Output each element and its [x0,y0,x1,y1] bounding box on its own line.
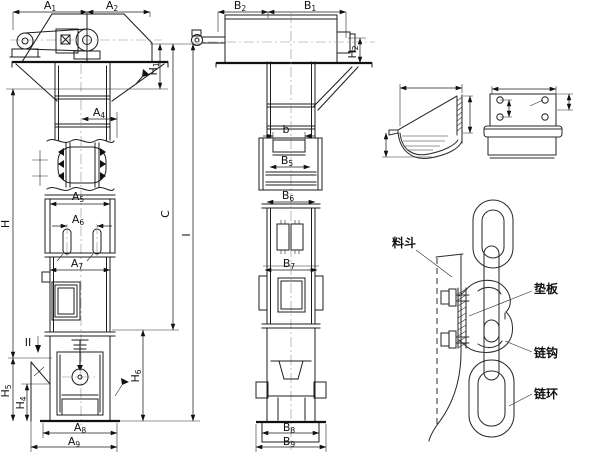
dim-label-a1: A1 [44,0,57,13]
technical-drawing: A1 A2 B2 B1 A4 A5 A6 A7 A8 A9 b B5 B6 B7… [0,0,600,456]
bucket-section-detail [382,84,473,158]
dim-label-h6: H6 [129,369,143,382]
bucket-plate-detail [484,86,573,158]
leader-line [416,250,452,277]
boot-section [40,336,120,421]
chain-link-top [473,200,513,268]
drawing-sheet: A1 A2 B2 B1 A4 A5 A6 A7 A8 A9 b B5 B6 B7… [0,0,600,456]
dim-label-h1: H1 [147,62,161,75]
callout-chain-hook: 链钩 [534,345,558,360]
side-elevation-view [190,13,375,450]
dimension-labels: A1 A2 B2 B1 A4 A5 A6 A7 A8 A9 b B5 B6 B7… [0,0,360,449]
intermediate-section [45,195,115,261]
dim-label-a5: A5 [72,190,85,204]
pad-plate [458,288,466,348]
dim-label-a2: A2 [106,0,119,13]
dim-label-a4: A4 [93,106,106,120]
dim-label-a6: A6 [72,213,85,227]
dim-label-h5: H5 [0,384,13,397]
dim-label-a8: A8 [74,421,87,435]
dim-label-b1: B1 [304,0,317,13]
dim-label-a9: A9 [68,435,81,449]
dim-label-b7: B7 [283,257,296,271]
dim-label-h4: H4 [14,396,28,409]
dim-label-c: C [159,210,172,218]
chain-link-bottom [469,360,514,437]
dim-label-a7: A7 [71,257,84,271]
callout-pad-plate: 垫板 [534,281,559,296]
leader-line [469,291,532,316]
chain-hook [459,280,513,352]
leader-line [505,341,532,352]
dim-label-b6: B6 [282,189,295,203]
chain-detail-view: 料斗 垫板 链钩 链环 [392,200,559,441]
front-elevation-view [10,14,168,425]
leader-line [509,394,532,406]
dim-label-h: H [0,220,12,228]
bucket-break-section [32,140,114,191]
dim-label-b9: B9 [283,435,296,449]
dim-label-b2: B2 [234,0,247,13]
dim-label-h2: H2 [346,45,360,58]
section-mark-ii: II [25,336,32,349]
callout-hopper: 料斗 [392,235,416,250]
dim-label-b: b [283,123,290,136]
callout-chain-ring: 链环 [534,386,558,401]
dim-label-i: I [180,233,193,236]
motor-side [337,32,350,53]
bolt-hole [542,114,548,120]
callout-leaders [416,250,532,406]
inlet-chute [31,362,50,421]
dim-label-b5: B5 [281,154,294,168]
